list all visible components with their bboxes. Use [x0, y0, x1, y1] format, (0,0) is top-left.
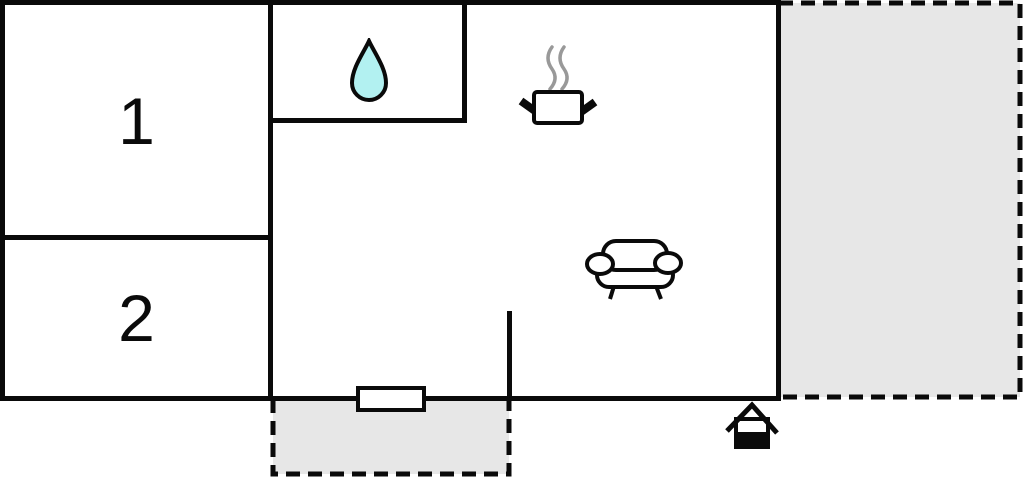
room-2: 2: [5, 240, 268, 396]
steam-wave-left: [548, 47, 555, 89]
sofa-icon: [584, 238, 684, 302]
room-1: 1: [5, 5, 268, 236]
room-1-label: 1: [118, 88, 155, 154]
wall-hall-partial: [507, 311, 512, 396]
pot-body: [534, 92, 582, 123]
room-2-label: 2: [118, 285, 155, 351]
floorplan-canvas: 1 2: [0, 0, 1024, 478]
cooking-pot-steam-icon: [515, 44, 601, 128]
water-drop-icon: [348, 38, 390, 104]
house-entrance-icon: [723, 400, 781, 452]
terrace-right: [779, 0, 1024, 401]
wall-bathroom-bottom: [273, 118, 467, 123]
wall-bedrooms-vertical: [268, 5, 273, 396]
sofa-armrest-left: [587, 254, 613, 274]
sofa-armrest-right: [655, 253, 681, 273]
wall-bathroom-right: [462, 5, 467, 123]
wall-bedrooms-divider: [5, 235, 268, 240]
entrance-door: [356, 386, 426, 412]
terrace-right-fill: [779, 3, 1020, 397]
steam-wave-right: [560, 47, 567, 89]
house-door-fill: [738, 432, 766, 445]
